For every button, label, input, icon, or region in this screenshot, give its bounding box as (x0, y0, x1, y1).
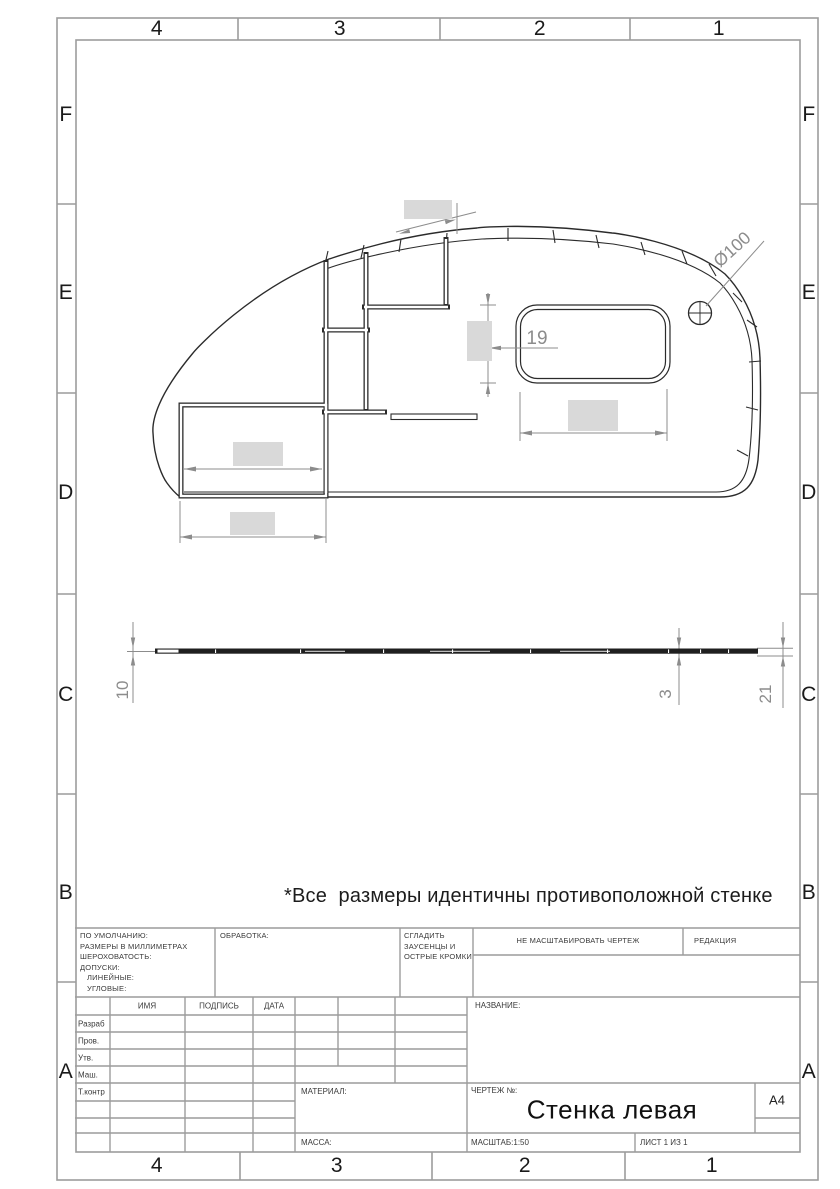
zone-row-right-d: D (801, 481, 817, 505)
zone-row-right-f: F (802, 103, 815, 127)
zone-col-bottom-3: 3 (331, 1154, 343, 1178)
zone-row-left-e: E (59, 281, 74, 305)
deburr-line: СГЛАДИТЬ (404, 931, 472, 942)
zone-row-left-f: F (59, 103, 72, 127)
zone-col-bottom-1: 1 (706, 1154, 718, 1178)
zone-row-right-c: C (801, 683, 817, 707)
role-checked: Пров. (78, 1036, 99, 1045)
material-label: МАТЕРИАЛ: (301, 1087, 347, 1096)
role-drawn: Разраб (78, 1019, 105, 1028)
defaults-block: ПО УМОЛЧАНИЮ: РАЗМЕРЫ В МИЛЛИМЕТРАХ ШЕРО… (80, 931, 187, 994)
defaults-line: ДОПУСКИ: (80, 963, 187, 974)
scale-value: МАСШТАБ:1:50 (471, 1138, 529, 1147)
zone-col-top-4: 4 (151, 17, 163, 41)
zone-col-top-3: 3 (334, 17, 346, 41)
zone-col-bottom-4: 4 (151, 1154, 163, 1178)
zone-row-left-b: B (59, 881, 74, 905)
zone-col-top-1: 1 (713, 17, 725, 41)
role-tech-control: Т.контр (78, 1088, 105, 1097)
drawing-no-label: ЧЕРТЕЖ №: (471, 1086, 517, 1095)
general-note: *Все размеры идентичны противоположной с… (284, 885, 773, 908)
zone-row-left-a: A (59, 1060, 74, 1084)
dim-edge-right: 21 (756, 685, 775, 704)
dim-hole-diameter: Ø100 (709, 227, 754, 271)
side-view (155, 649, 758, 654)
dim-thickness-right: 3 (656, 689, 675, 698)
title-label: НАЗВАНИЕ: (475, 1001, 520, 1010)
zone-col-top-2: 2 (534, 17, 546, 41)
revision-label: РЕДАКЦИЯ (694, 936, 736, 947)
mass-label: МАССА: (301, 1138, 332, 1147)
sheet-format: А4 (769, 1093, 785, 1108)
drawing-sheet: { "colors": { "drawing_line": "#2b2b2b",… (0, 0, 840, 1189)
do-not-scale-label: НЕ МАСШТАБИРОВАТЬ ЧЕРТЕЖ (517, 936, 640, 947)
defaults-line: ЛИНЕЙНЫЕ: (80, 973, 187, 984)
zone-row-right-a: A (802, 1060, 817, 1084)
column-header-signature: ПОДПИСЬ (199, 1002, 239, 1011)
interior-partitions (181, 237, 477, 496)
defaults-line: РАЗМЕРЫ В МИЛЛИМЕТРАХ (80, 942, 187, 953)
role-approved: Утв. (78, 1053, 93, 1062)
sheet-count: ЛИСТ 1 ИЗ 1 (640, 1138, 688, 1147)
zone-col-bottom-2: 2 (519, 1154, 531, 1178)
defaults-line: УГЛОВЫЕ: (80, 984, 187, 995)
dim-thickness-left: 10 (113, 681, 132, 700)
hole-marker (689, 302, 712, 325)
zone-row-right-e: E (802, 281, 817, 305)
redacted-dimension-boxes (230, 200, 618, 535)
dim-window-gap: 19 (526, 328, 547, 349)
zone-row-left-c: C (58, 683, 74, 707)
zone-row-left-d: D (58, 481, 74, 505)
dimensions (127, 203, 793, 708)
deburr-block: СГЛАДИТЬ ЗАУСЕНЦЫ И ОСТРЫЕ КРОМКИ (404, 931, 472, 963)
finishing-label: ОБРАБОТКА: (220, 931, 269, 942)
defaults-line: ШЕРОХОВАТОСТЬ: (80, 952, 187, 963)
deburr-line: ОСТРЫЕ КРОМКИ (404, 952, 472, 963)
defaults-line: ПО УМОЛЧАНИЮ: (80, 931, 187, 942)
column-header-date: ДАТА (264, 1002, 284, 1011)
drawing-canvas: Ø100 19 10 3 21 (0, 0, 840, 1189)
deburr-line: ЗАУСЕНЦЫ И (404, 942, 472, 953)
zone-row-right-b: B (802, 881, 817, 905)
sheet-frame (57, 18, 818, 1180)
role-mach: Маш. (78, 1070, 98, 1079)
column-header-name: ИМЯ (138, 1002, 156, 1011)
drawing-title: Стенка левая (527, 1095, 698, 1126)
floating-shelf (391, 414, 477, 420)
dimension-arrows (131, 220, 785, 667)
